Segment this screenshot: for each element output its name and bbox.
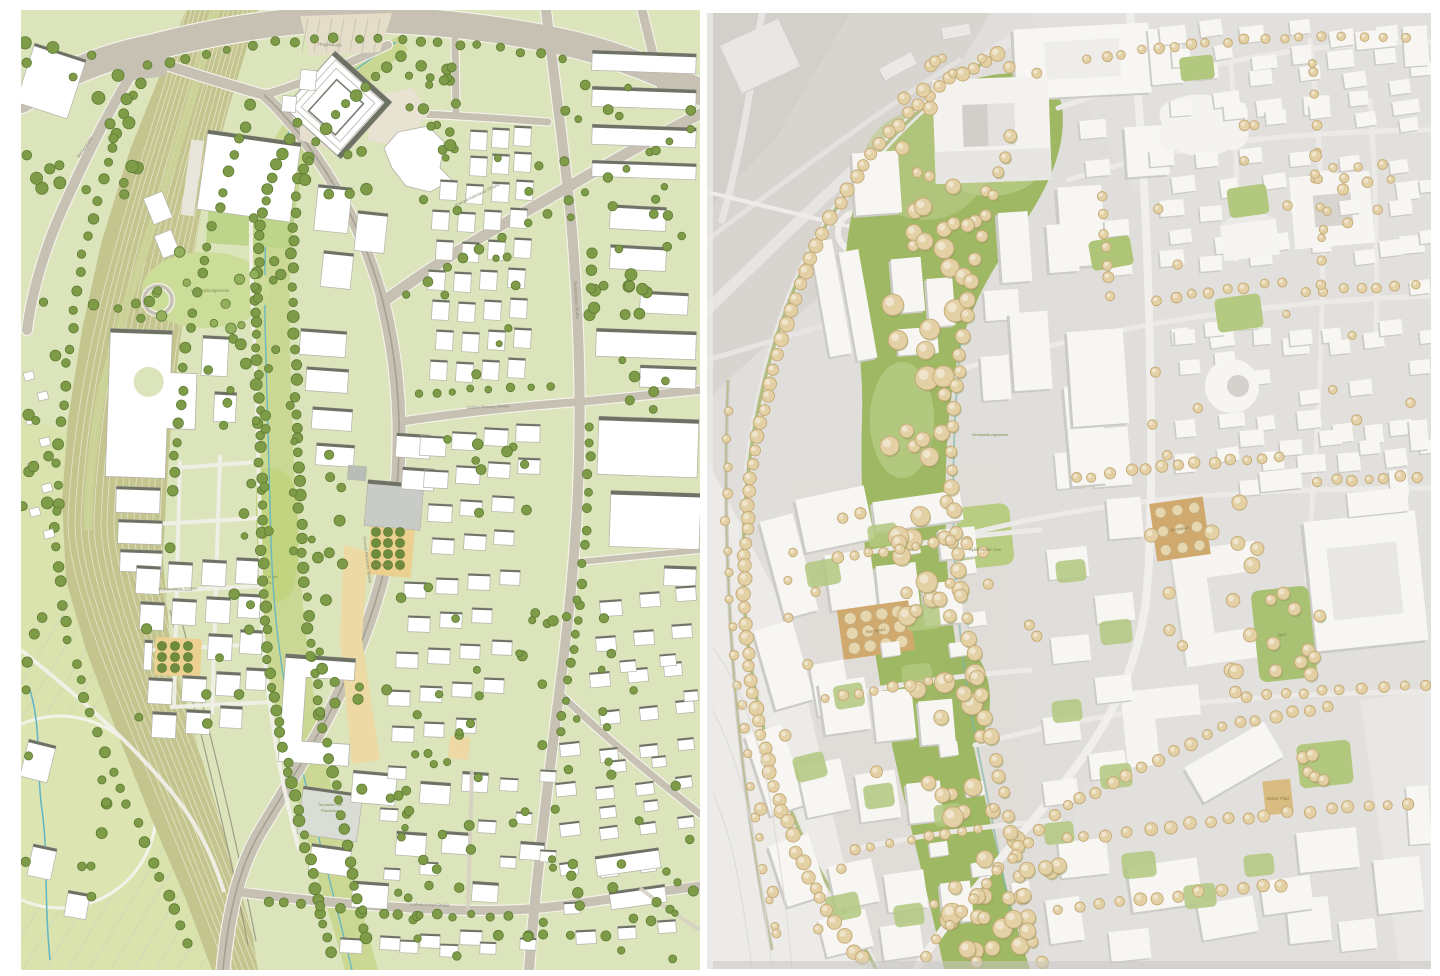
svg-text:Spiel: Spiel [1277, 632, 1287, 638]
svg-text:Baumplatz: Baumplatz [373, 562, 392, 567]
svg-text:Spiel in der Aue: Spiel in der Aue [969, 547, 1002, 552]
svg-text:Veranstaltungswiese: Veranstaltungswiese [191, 288, 230, 293]
svg-text:Spiel in der: Spiel in der [258, 574, 279, 579]
svg-text:Veranstaltungswiese: Veranstaltungswiese [972, 432, 1009, 437]
svg-text:kleiner Platz: kleiner Platz [1267, 796, 1290, 801]
svg-text:Fischbach: Fischbach [321, 808, 339, 813]
svg-text:Terrassen am: Terrassen am [318, 802, 343, 807]
svg-text:Aue: Aue [264, 580, 272, 585]
